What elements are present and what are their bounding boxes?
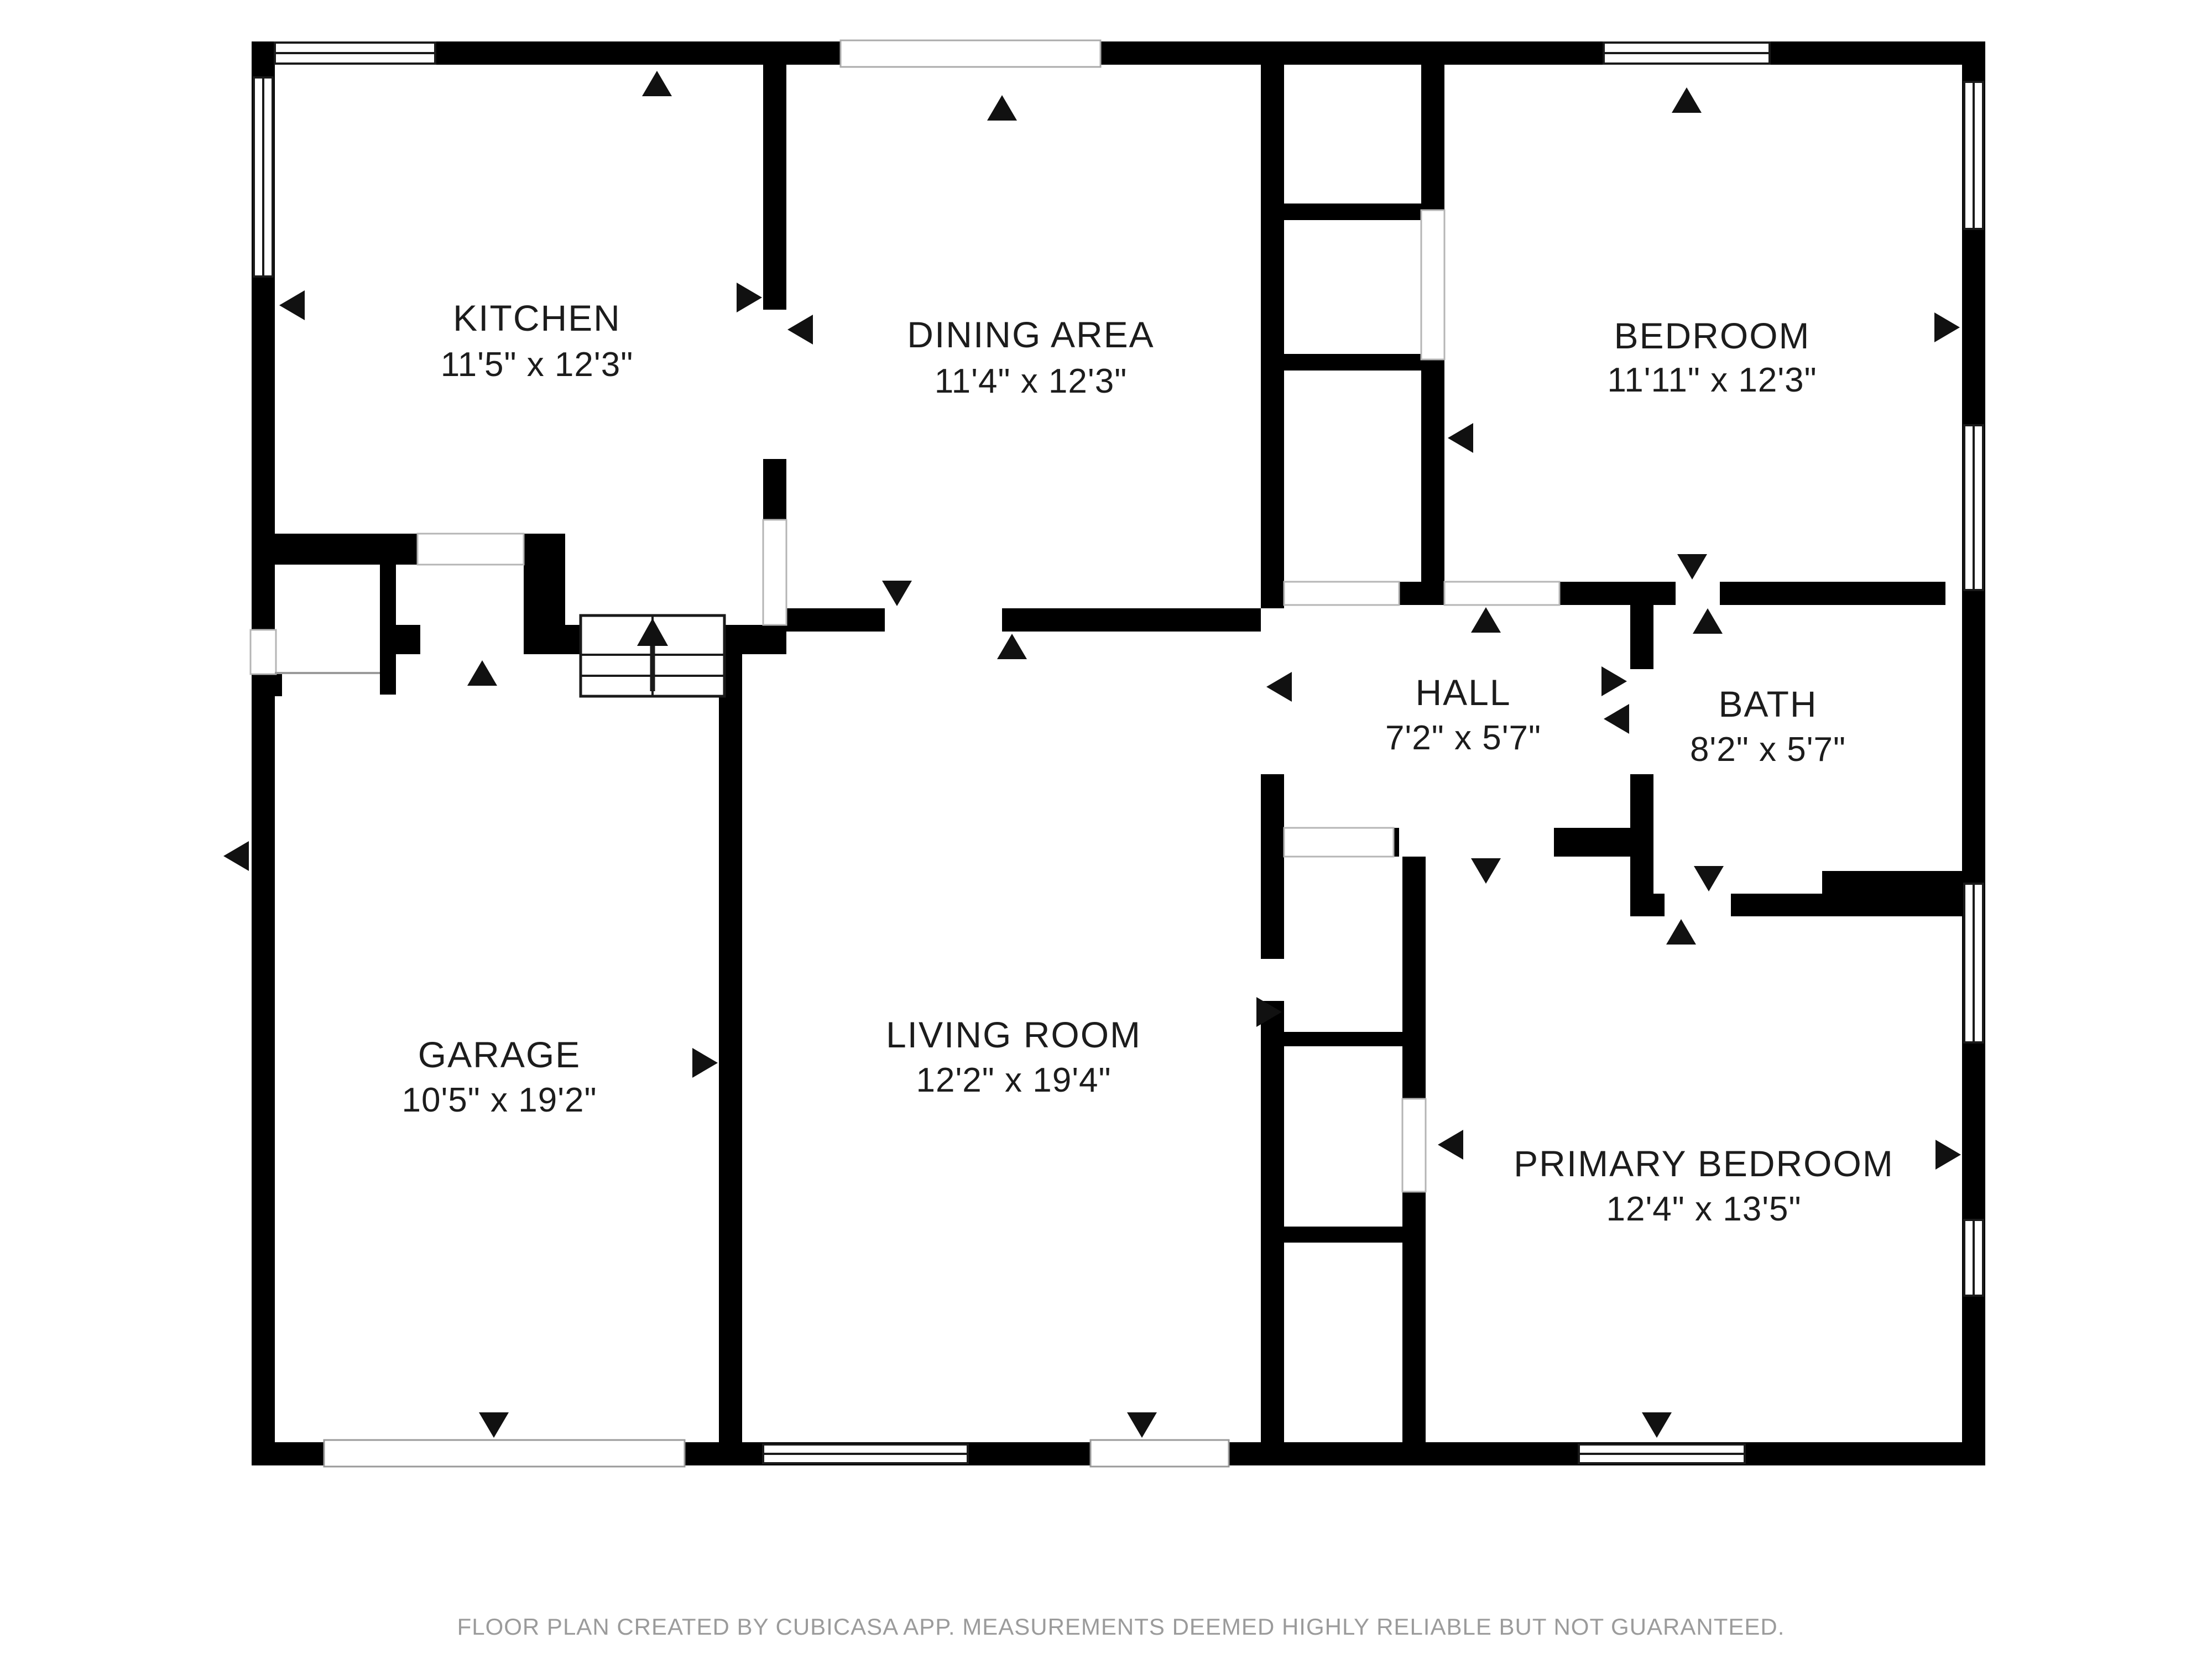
wall-segment — [1630, 894, 1665, 916]
wall-segment — [1421, 359, 1444, 582]
door-direction-arrow-icon — [1601, 666, 1627, 696]
wall-segment — [1399, 582, 1444, 605]
window — [254, 77, 273, 276]
wall-segment — [1261, 1001, 1284, 1442]
wall-segment — [1284, 204, 1421, 220]
room-label-bedroom: BEDROOM — [1614, 315, 1810, 356]
room-labels: KITCHEN 11'5" x 12'3" DINING AREA 11'4" … — [401, 298, 1893, 1228]
wall-segment — [1720, 582, 1945, 605]
window — [1964, 82, 1983, 229]
room-dims-primary-bedroom: 12'4" x 13'5" — [1606, 1190, 1801, 1228]
door-direction-arrow-icon — [1438, 1130, 1463, 1160]
window — [1604, 43, 1770, 64]
window — [1964, 425, 1983, 590]
wall-segment — [396, 625, 420, 654]
door-direction-arrow-icon — [1471, 607, 1501, 633]
picture-window — [841, 40, 1100, 67]
door-direction-arrow-icon — [223, 841, 249, 871]
door-direction-arrow-icon — [997, 634, 1027, 659]
door-direction-arrow-icon — [1934, 312, 1960, 342]
wall-segment — [763, 65, 786, 310]
large-door-opening — [1091, 1440, 1229, 1467]
door-direction-arrow-icon — [279, 290, 305, 320]
room-label-living-room: LIVING ROOM — [886, 1014, 1141, 1055]
floor-plan-canvas: KITCHEN 11'5" x 12'3" DINING AREA 11'4" … — [0, 0, 2212, 1659]
room-label-hall: HALL — [1415, 672, 1511, 713]
floor-plan-page: KITCHEN 11'5" x 12'3" DINING AREA 11'4" … — [0, 0, 2212, 1659]
wall-segment — [1554, 828, 1630, 857]
door-direction-arrow-icon — [1666, 919, 1696, 945]
room-label-kitchen: KITCHEN — [453, 298, 621, 338]
wall-segment — [719, 654, 742, 1442]
door-direction-arrow-icon — [692, 1048, 718, 1078]
room-dims-hall: 7'2" x 5'7" — [1385, 719, 1541, 757]
door-direction-arrow-icon — [1604, 704, 1629, 734]
staircase — [581, 615, 724, 696]
room-label-dining-area: DINING AREA — [907, 314, 1154, 355]
room-dims-living-room: 12'2" x 19'4" — [916, 1061, 1111, 1099]
doorway-opening — [251, 630, 276, 674]
wall-segment — [786, 608, 885, 632]
room-dims-garage: 10'5" x 19'2" — [401, 1081, 597, 1119]
wall-segment — [763, 459, 786, 520]
doorway-opening — [1284, 582, 1399, 605]
wall-segment — [1630, 605, 1653, 669]
wall-segment — [1822, 871, 1962, 916]
door-direction-arrow-icon — [479, 1412, 509, 1438]
door-direction-arrow-icon — [1471, 858, 1501, 884]
window — [275, 43, 435, 64]
wall-segment — [1284, 1032, 1402, 1046]
wall-segment — [1559, 582, 1676, 605]
wall-segment — [1402, 857, 1426, 1099]
room-dims-dining-area: 11'4" x 12'3" — [935, 362, 1127, 400]
door-direction-arrow-icon — [642, 71, 672, 96]
doorway-opening — [418, 534, 524, 565]
door-direction-arrow-icon — [1694, 866, 1724, 891]
doorway-opening — [1402, 1099, 1426, 1192]
doorway-opening — [1421, 210, 1444, 359]
room-label-primary-bedroom: PRIMARY BEDROOM — [1514, 1143, 1894, 1184]
footer-disclaimer: FLOOR PLAN CREATED BY CUBICASA APP. MEAS… — [457, 1614, 1785, 1640]
window — [1964, 884, 1983, 1042]
wall-segment — [1630, 774, 1653, 894]
door-direction-arrow-icon — [787, 315, 813, 345]
door-direction-arrow-icon — [737, 283, 762, 312]
wall-segment — [1002, 608, 1261, 632]
wall-segment — [1261, 774, 1284, 959]
room-label-garage: GARAGE — [418, 1034, 581, 1075]
wall-segment — [724, 625, 786, 654]
wall-segment — [1284, 1227, 1402, 1243]
doorway-opening — [1444, 582, 1559, 605]
door-direction-arrow-icon — [1677, 554, 1707, 580]
door-direction-arrow-icon — [467, 660, 497, 686]
wall-segment — [380, 565, 396, 695]
large-door-opening — [324, 1440, 685, 1467]
window — [1579, 1444, 1745, 1463]
window — [1964, 1220, 1983, 1296]
wall-segment — [1421, 65, 1444, 210]
room-dims-kitchen: 11'5" x 12'3" — [441, 346, 633, 384]
door-direction-arrow-icon — [1936, 1140, 1961, 1170]
door-direction-arrow-icon — [1693, 608, 1723, 634]
door-direction-arrow-icon — [1672, 87, 1702, 113]
door-direction-arrow-icon — [882, 581, 912, 606]
room-dims-bedroom: 11'11" x 12'3" — [1607, 361, 1817, 399]
wall-segment — [1284, 354, 1421, 371]
window — [763, 1444, 968, 1463]
door-direction-arrow-icon — [1642, 1412, 1672, 1438]
room-label-bath: BATH — [1718, 684, 1817, 724]
door-direction-arrow-icon — [987, 95, 1017, 121]
wall-segment — [275, 673, 282, 696]
openings-layer — [251, 210, 1559, 1467]
room-dims-bath: 8'2" x 5'7" — [1690, 731, 1846, 769]
door-direction-arrow-icon — [1266, 672, 1292, 702]
door-direction-arrow-icon — [1127, 1412, 1157, 1438]
wall-segment — [1402, 1192, 1426, 1442]
wall-segment — [1261, 65, 1284, 608]
wall-segment — [252, 534, 418, 565]
wall-segment — [1731, 894, 1822, 916]
doorway-opening — [1284, 828, 1394, 857]
door-direction-arrow-icon — [1448, 423, 1473, 453]
doorway-opening — [763, 520, 786, 625]
